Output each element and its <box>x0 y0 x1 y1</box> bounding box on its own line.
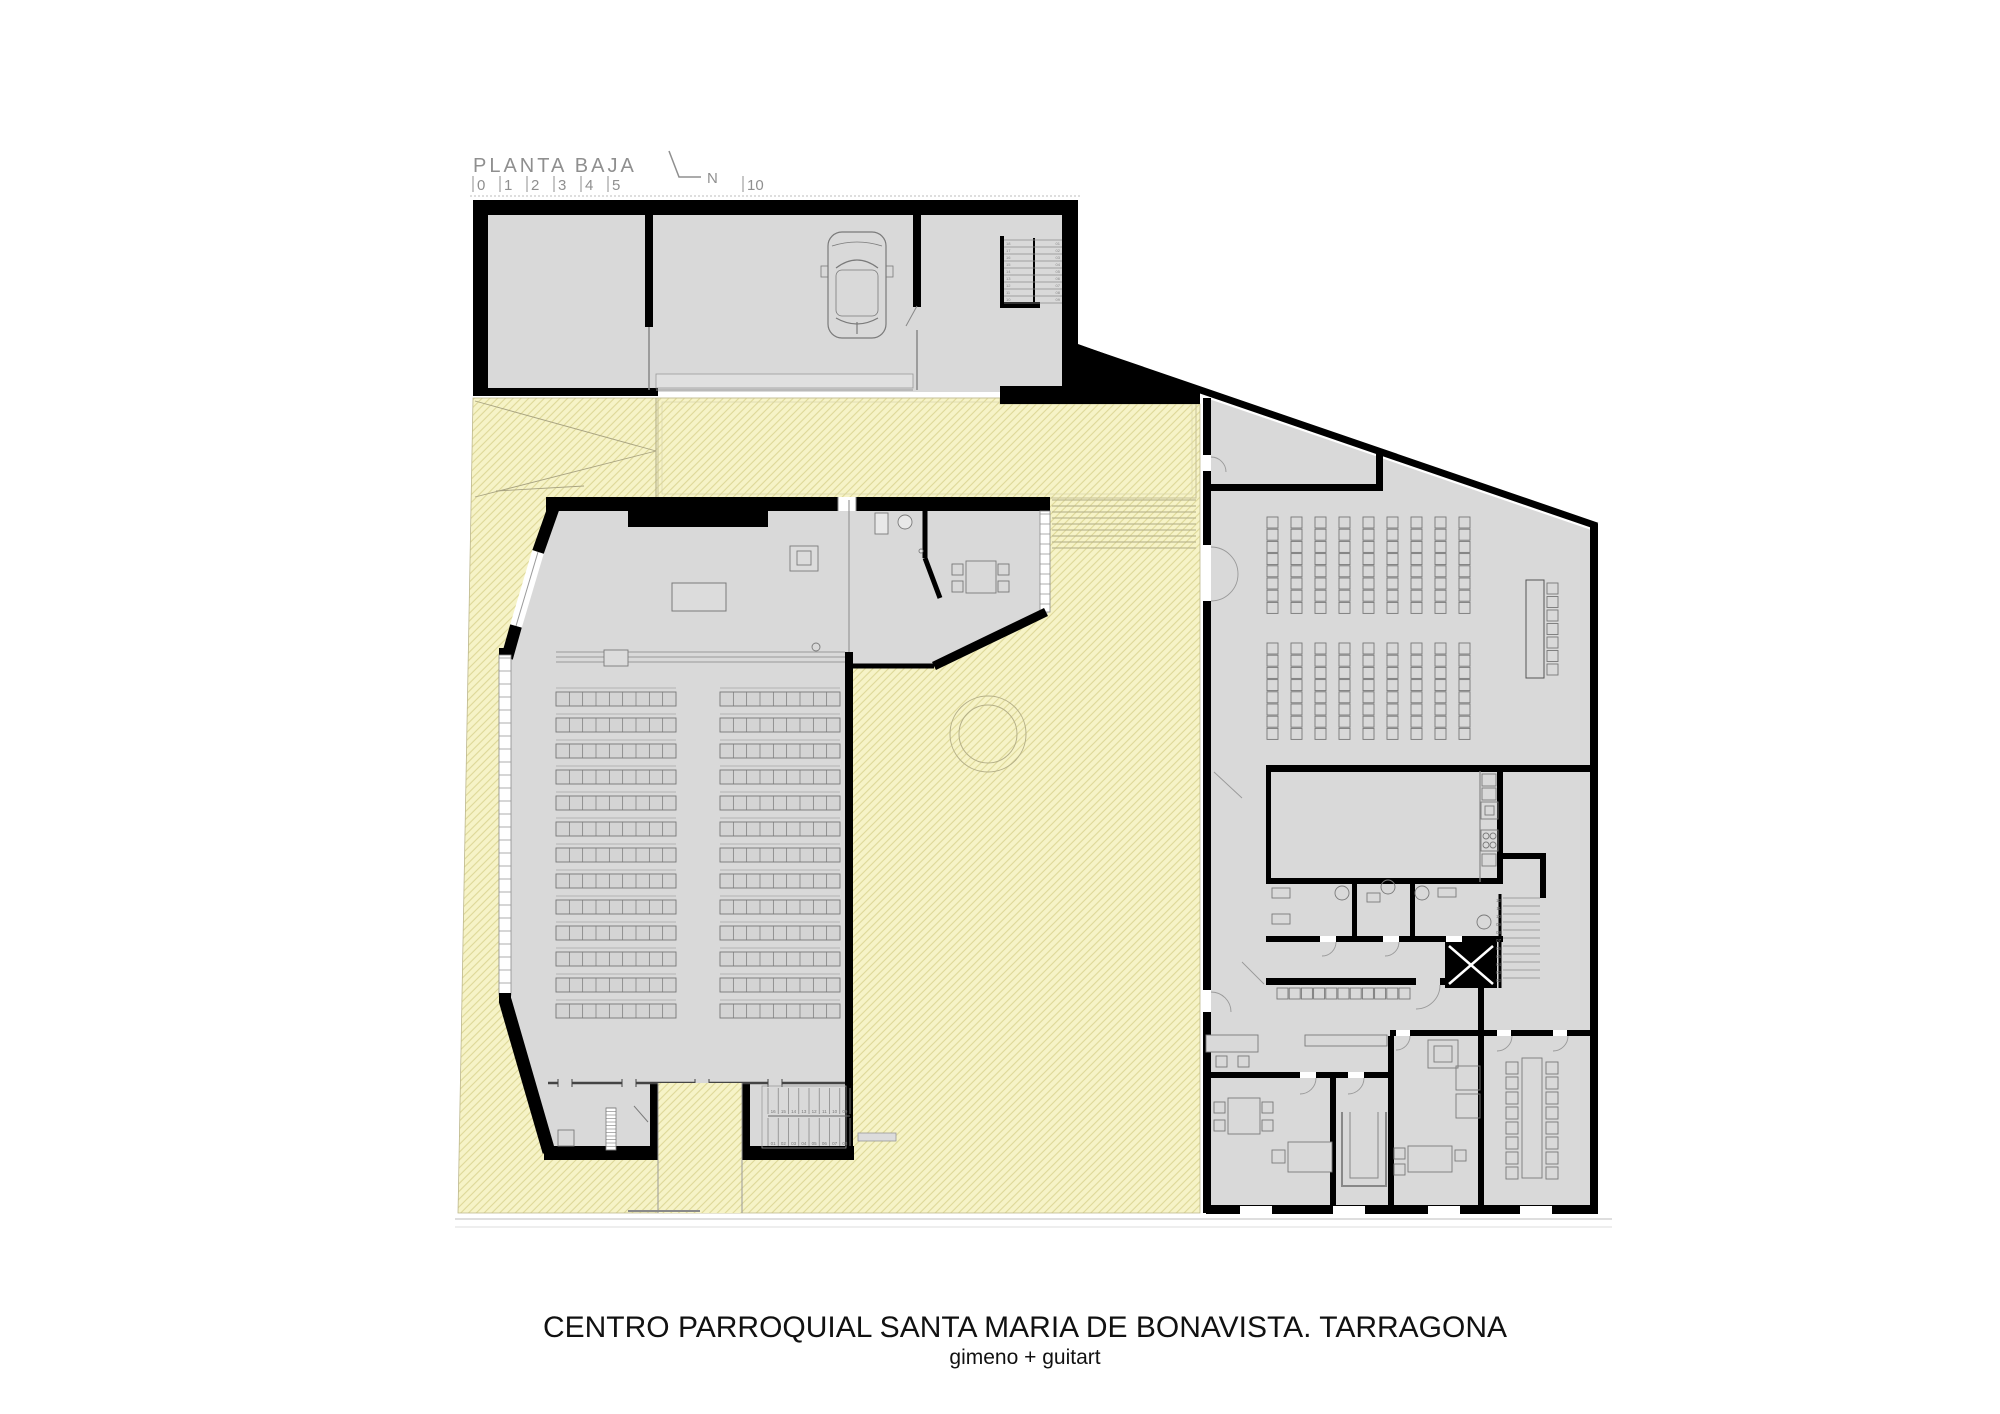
scale-tick-2: 2 <box>531 177 539 194</box>
architects-name: gimeno + guitart <box>949 1346 1100 1369</box>
floor-plan-drawing: PLANTA BAJA 0 1 2 3 4 5 10 N <box>0 0 2000 1414</box>
svg-text:04: 04 <box>801 1141 807 1146</box>
svg-text:09: 09 <box>842 1109 848 1114</box>
reception-desk <box>1206 1035 1258 1052</box>
svg-text:12: 12 <box>1496 898 1502 903</box>
svg-text:06: 06 <box>1056 276 1061 281</box>
scale-bar <box>473 176 743 192</box>
hall-bench <box>1305 1035 1387 1046</box>
svg-text:02: 02 <box>1056 248 1061 253</box>
wc-toilet <box>875 513 888 534</box>
sanctuary-recess <box>628 511 768 527</box>
svg-text:08: 08 <box>842 1141 848 1146</box>
svg-text:12: 12 <box>1006 283 1011 288</box>
svg-text:02: 02 <box>781 1141 787 1146</box>
svg-text:09: 09 <box>1056 297 1061 302</box>
svg-text:11: 11 <box>822 1109 827 1114</box>
elevator <box>1445 942 1497 988</box>
office2-desk <box>1408 1146 1452 1172</box>
svg-text:09: 09 <box>1496 922 1502 927</box>
scale-tick-5: 5 <box>612 177 620 194</box>
svg-text:12: 12 <box>812 1109 818 1114</box>
svg-text:07: 07 <box>1056 283 1061 288</box>
courtyard-bench <box>858 1133 896 1141</box>
tabernacle <box>790 546 818 571</box>
svg-text:15: 15 <box>781 1109 787 1114</box>
svg-text:14: 14 <box>791 1109 797 1114</box>
svg-text:01: 01 <box>1056 241 1061 246</box>
scale-tick-4: 4 <box>585 177 593 194</box>
head-table-chairs <box>1547 583 1558 675</box>
office2-chair <box>1455 1150 1466 1161</box>
svg-text:06: 06 <box>822 1141 828 1146</box>
svg-text:18: 18 <box>1006 241 1011 246</box>
svg-text:05: 05 <box>1496 954 1502 959</box>
north-label: N <box>707 170 718 187</box>
svg-text:07: 07 <box>1496 938 1502 943</box>
svg-text:16: 16 <box>1006 255 1011 260</box>
scale-tick-1: 1 <box>504 177 512 194</box>
annex-glazing <box>1040 511 1050 612</box>
svg-text:14: 14 <box>1006 269 1011 274</box>
office1-table <box>1228 1098 1260 1134</box>
svg-text:10: 10 <box>1006 297 1011 302</box>
garage-floor <box>487 214 1064 392</box>
wc-sink <box>898 515 912 529</box>
office1-desk <box>1288 1142 1332 1172</box>
svg-text:04: 04 <box>1056 262 1061 267</box>
svg-text:03: 03 <box>1496 970 1502 975</box>
svg-text:13: 13 <box>1006 276 1011 281</box>
svg-text:10: 10 <box>832 1109 838 1114</box>
svg-text:15: 15 <box>1006 262 1011 267</box>
title-block: CENTRO PARROQUIAL SANTA MARIA DE BONAVIS… <box>543 1311 1507 1369</box>
svg-text:17: 17 <box>1006 248 1011 253</box>
garage-door-slab <box>656 374 913 388</box>
svg-text:03: 03 <box>791 1141 797 1146</box>
svg-text:10: 10 <box>1496 914 1502 919</box>
svg-text:06: 06 <box>1496 946 1502 951</box>
sacristy-table <box>966 561 996 593</box>
svg-text:01: 01 <box>771 1141 777 1146</box>
office1-chair <box>1272 1150 1285 1163</box>
svg-text:03: 03 <box>1056 255 1061 260</box>
svg-text:08: 08 <box>1056 290 1061 295</box>
plan-title: PLANTA BAJA <box>473 155 637 177</box>
hall-chairs <box>1277 988 1410 999</box>
scale-tick-3: 3 <box>558 177 566 194</box>
drawing-header: PLANTA BAJA 0 1 2 3 4 5 10 N <box>473 151 764 194</box>
north-arrow-icon: N <box>669 151 718 187</box>
svg-text:08: 08 <box>1496 930 1502 935</box>
svg-text:16: 16 <box>771 1109 777 1114</box>
scale-tick-10: 10 <box>747 177 764 194</box>
svg-text:05: 05 <box>812 1141 818 1146</box>
svg-text:02: 02 <box>1496 978 1502 983</box>
project-title: CENTRO PARROQUIAL SANTA MARIA DE BONAVIS… <box>543 1311 1507 1344</box>
ambo <box>604 650 628 666</box>
parish-center-building: 1211100908070605040302 <box>1203 398 1598 1214</box>
svg-text:05: 05 <box>1056 269 1061 274</box>
svg-text:04: 04 <box>1496 962 1502 967</box>
meeting-table <box>1522 1058 1542 1178</box>
svg-text:11: 11 <box>1496 906 1501 911</box>
scale-tick-0: 0 <box>477 177 485 194</box>
altar <box>672 583 726 611</box>
svg-text:07: 07 <box>832 1141 838 1146</box>
svg-text:13: 13 <box>801 1109 807 1114</box>
head-table <box>1526 580 1544 678</box>
